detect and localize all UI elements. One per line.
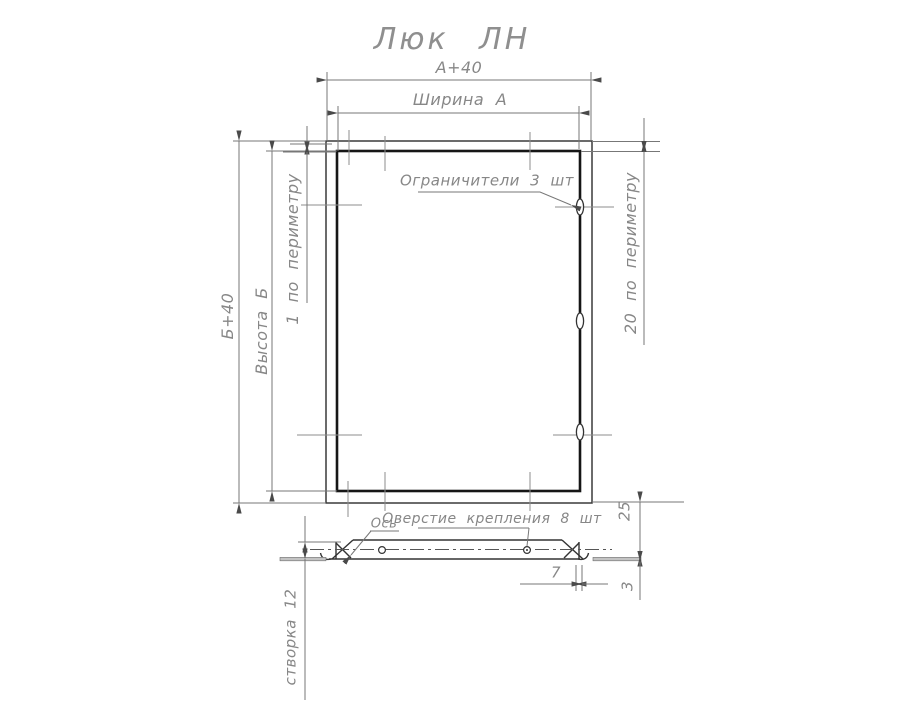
frame-flange-right [593, 557, 641, 560]
section-dimensions [298, 502, 684, 700]
frame-outer-rect [326, 141, 592, 503]
mount-hole-leader [527, 528, 529, 546]
top-dimensions [327, 72, 591, 151]
mount-hole-left [379, 547, 386, 554]
dim-text-leaf: створка 12 [284, 589, 299, 686]
dim-text-7: 7 [551, 566, 561, 581]
dim-text-inner-width: Ширина А [413, 92, 507, 108]
dim-text-outer-width: А+40 [436, 60, 483, 76]
limiter-middle [576, 313, 583, 329]
drawing-canvas: Люк ЛН А+40 Ширина А Ограничители 3 шт Б… [0, 0, 900, 720]
hatch-frame-outline [326, 141, 592, 503]
mount-holes-label: Оверстие крепления 8 шт [382, 512, 601, 526]
dim-text-gap-perimeter: 1 по периметру [285, 173, 301, 324]
axis-leader [351, 531, 371, 555]
mount-hole-right-center [526, 549, 528, 551]
drawing-title: Люк ЛН [374, 25, 531, 55]
leaf-inner-rect [337, 151, 580, 491]
dim-text-outer-height: Б+40 [220, 293, 236, 340]
dim-text-3: 3 [621, 581, 636, 591]
dim-text-25: 25 [618, 501, 633, 521]
limiter-top [576, 199, 583, 215]
frame-flange-left [280, 557, 326, 560]
limiters-label: Ограничители 3 шт [400, 174, 574, 189]
dim-text-flange-perimeter: 20 по периметру [623, 172, 639, 334]
limiters-leader-line [418, 192, 571, 205]
limiter-bottom [576, 424, 583, 440]
dim-text-inner-height: Высота Б [254, 287, 270, 374]
section-leaders [351, 528, 529, 555]
section-view [280, 540, 641, 561]
